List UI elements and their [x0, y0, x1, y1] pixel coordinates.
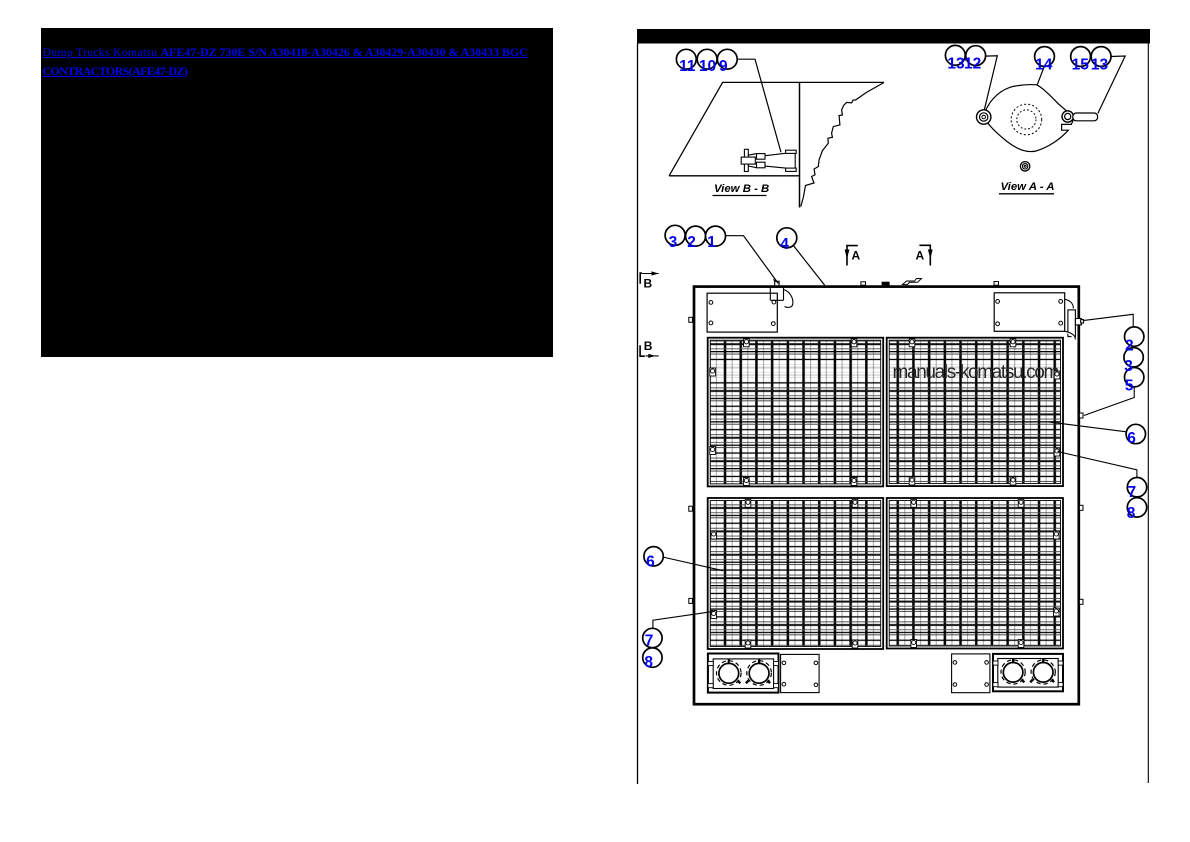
svg-text:B: B: [644, 339, 653, 353]
svg-text:8: 8: [1127, 505, 1136, 522]
svg-text:manuals-komatsu.com: manuals-komatsu.com: [893, 362, 1059, 383]
svg-text:6: 6: [1127, 430, 1136, 447]
svg-text:6: 6: [646, 554, 655, 571]
svg-text:2: 2: [687, 234, 696, 251]
svg-text:4: 4: [780, 236, 789, 253]
svg-text:13: 13: [1091, 57, 1109, 74]
svg-text:7: 7: [645, 633, 654, 650]
svg-text:3: 3: [669, 234, 678, 251]
svg-text:13: 13: [947, 56, 965, 73]
svg-text:View A - A: View A - A: [1001, 181, 1055, 193]
svg-text:A: A: [852, 249, 861, 263]
svg-text:5: 5: [1125, 378, 1134, 395]
svg-text:View B - B: View B - B: [714, 183, 769, 195]
svg-text:7: 7: [1127, 484, 1136, 501]
svg-text:12: 12: [964, 56, 981, 73]
svg-text:1: 1: [707, 234, 716, 251]
svg-text:9: 9: [719, 58, 728, 75]
svg-text:B: B: [644, 277, 653, 291]
svg-text:8: 8: [644, 654, 653, 671]
svg-text:10: 10: [699, 58, 716, 75]
svg-text:14: 14: [1035, 57, 1053, 74]
svg-text:3: 3: [1124, 358, 1133, 375]
svg-text:11: 11: [679, 58, 696, 75]
svg-text:2: 2: [1125, 338, 1134, 355]
svg-text:A: A: [916, 249, 925, 263]
svg-text:15: 15: [1072, 57, 1090, 74]
